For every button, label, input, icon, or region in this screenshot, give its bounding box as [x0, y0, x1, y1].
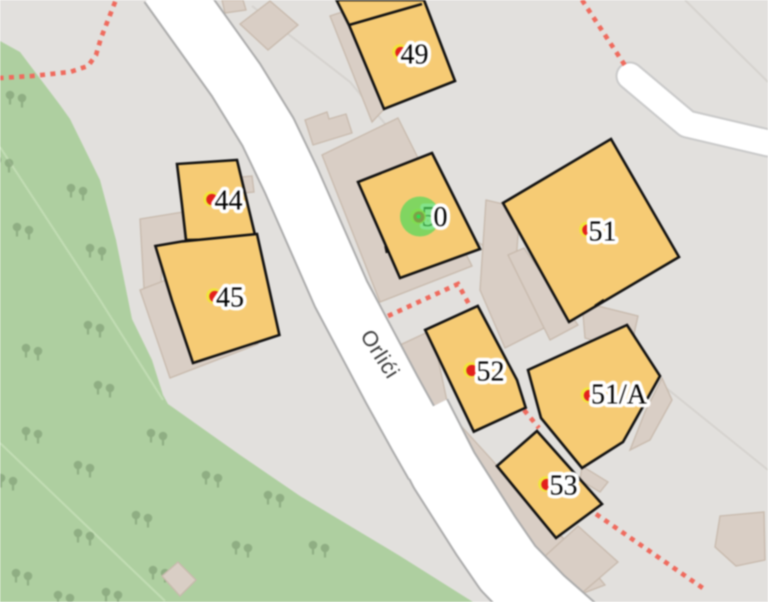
svg-text:53: 53	[550, 471, 578, 502]
svg-text:52: 52	[477, 357, 505, 388]
svg-text:0: 0	[434, 202, 448, 233]
svg-text:51: 51	[589, 217, 617, 248]
svg-text:45: 45	[216, 283, 244, 314]
svg-text:49: 49	[401, 40, 429, 71]
svg-text:44: 44	[215, 186, 243, 217]
svg-text:51/A: 51/A	[591, 380, 648, 411]
